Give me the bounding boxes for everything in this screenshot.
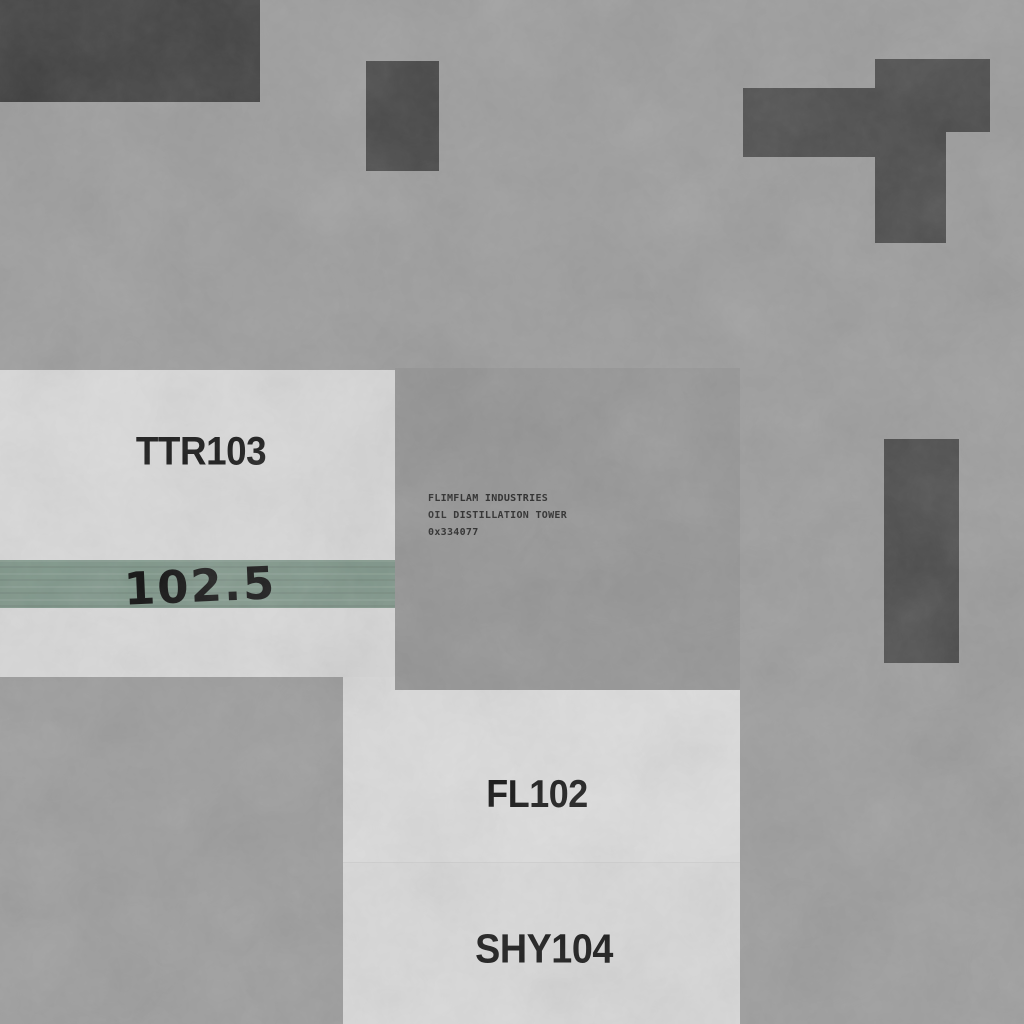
info-plate: FLIMFLAM INDUSTRIES OIL DISTILLATION TOW…	[428, 490, 567, 541]
fl102-label: FL102	[486, 773, 587, 817]
dark-bar-right	[884, 439, 959, 663]
dark-shape-top-right	[875, 59, 990, 132]
dark-block-top-left	[0, 0, 260, 102]
ttr103-label: TTR103	[136, 430, 266, 475]
tank-section-fl	[343, 677, 740, 863]
plate-line-company: FLIMFLAM INDUSTRIES	[428, 490, 567, 507]
panel-ttr	[0, 370, 395, 677]
level-value: 102.5	[123, 556, 278, 616]
dark-shape-arm	[743, 88, 875, 157]
shy104-label: SHY104	[475, 926, 613, 973]
concrete-texture-scene: TTR103 FL102 SHY104 102.5 FLIMFLAM INDUS…	[0, 0, 1024, 1024]
plate-line-equipment: OIL DISTILLATION TOWER	[428, 507, 567, 524]
plate-line-serial: 0x334077	[428, 524, 567, 541]
dark-shape-leg	[875, 132, 946, 243]
dark-block-small	[366, 61, 439, 171]
